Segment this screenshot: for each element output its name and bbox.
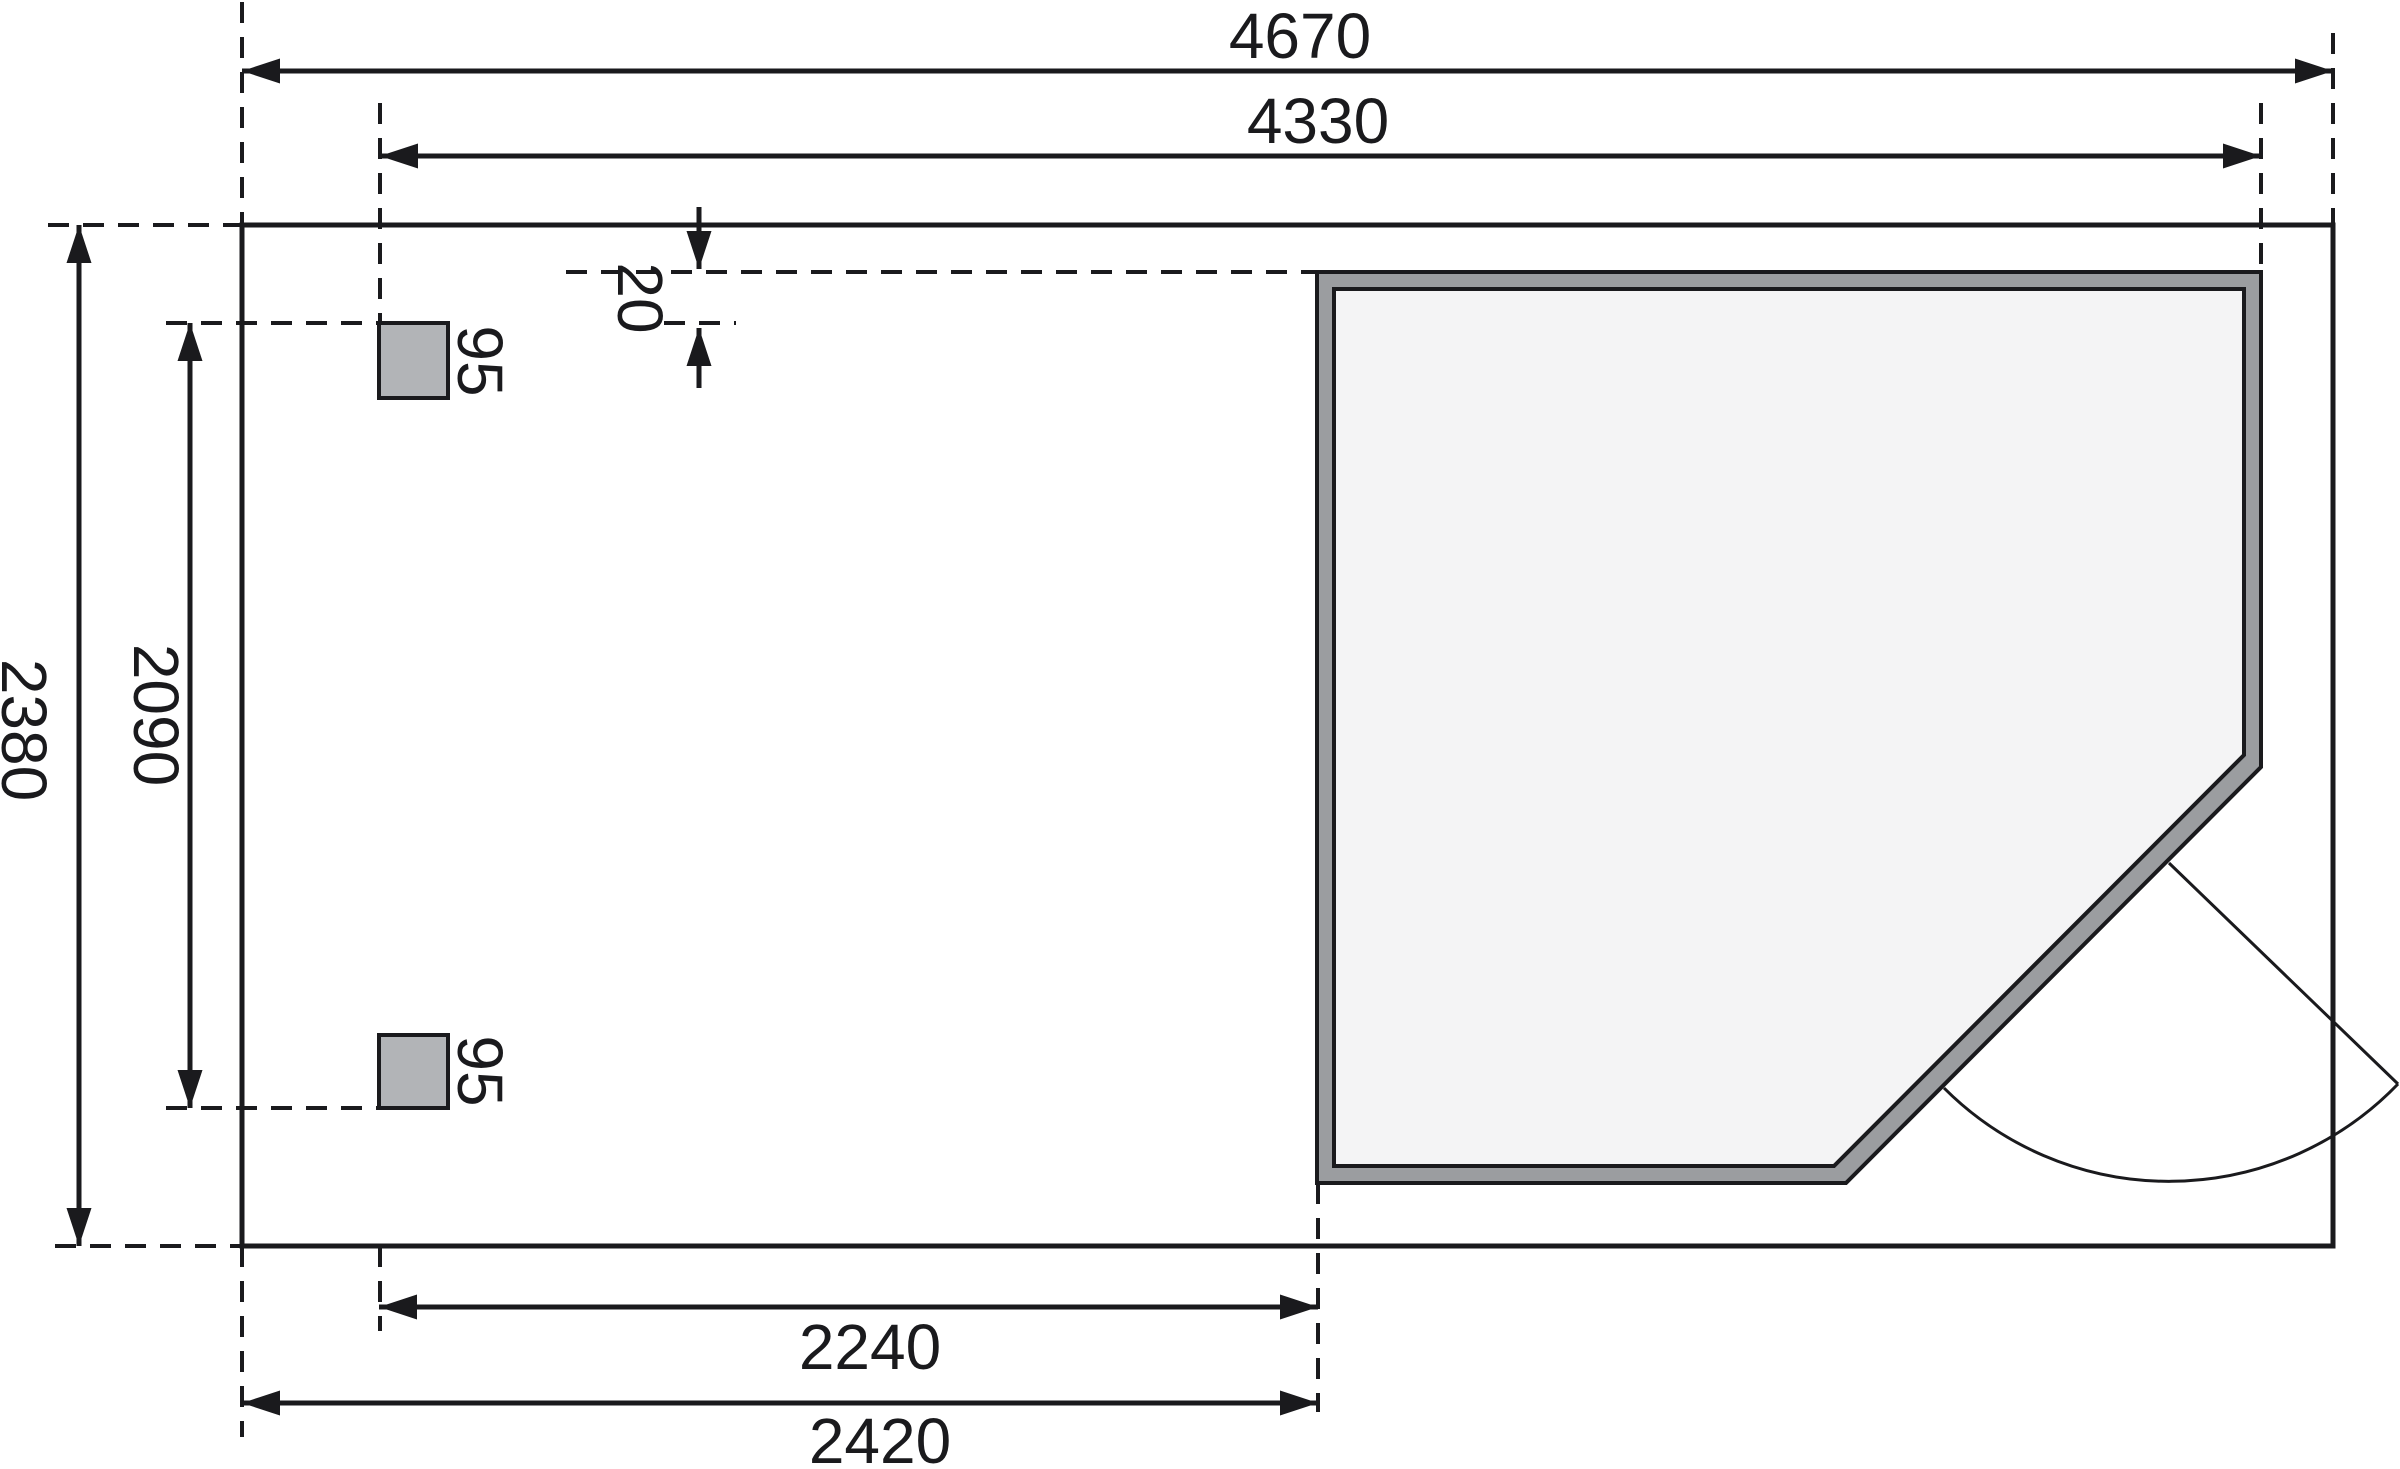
floor-plan-drawing: 467043302380209095952022402420 xyxy=(0,0,2400,1469)
dimension-arrowhead xyxy=(178,323,203,361)
foundation-post xyxy=(379,323,448,398)
door-swing-arc xyxy=(1944,1084,2398,1181)
dimension-arrowhead xyxy=(380,144,418,169)
dimension-arrowhead xyxy=(1280,1295,1318,1320)
building-interior xyxy=(1334,289,2244,1166)
dimension-arrowhead xyxy=(687,231,712,269)
dimension-arrowhead xyxy=(2295,59,2333,84)
dimension-label: 2240 xyxy=(799,1311,941,1383)
dimension-label: 2090 xyxy=(120,644,192,786)
dimension-arrowhead xyxy=(1280,1391,1318,1416)
dimension-arrowhead xyxy=(67,225,92,263)
dimension-arrowhead xyxy=(242,59,280,84)
dimension-label: 2380 xyxy=(0,659,60,801)
dimension-arrowhead xyxy=(2223,144,2261,169)
dimension-arrowhead xyxy=(242,1391,280,1416)
foundation-post xyxy=(379,1035,448,1108)
building-group xyxy=(1317,272,2261,1183)
dimension-label: 95 xyxy=(444,1035,516,1106)
dimension-arrowhead xyxy=(178,1070,203,1108)
dimension-label: 4330 xyxy=(1247,85,1389,157)
door-leaf-line xyxy=(2169,863,2398,1084)
dimension-label: 20 xyxy=(604,262,676,333)
dimension-arrowhead xyxy=(67,1208,92,1246)
dimension-arrowhead xyxy=(687,328,712,366)
dimension-label: 2420 xyxy=(809,1405,951,1469)
posts-group xyxy=(379,323,448,1108)
dimension-labels-group: 467043302380209095952022402420 xyxy=(0,0,1389,1469)
dimension-label: 95 xyxy=(444,325,516,396)
dimension-arrowhead xyxy=(379,1295,417,1320)
dimension-label: 4670 xyxy=(1229,0,1371,72)
